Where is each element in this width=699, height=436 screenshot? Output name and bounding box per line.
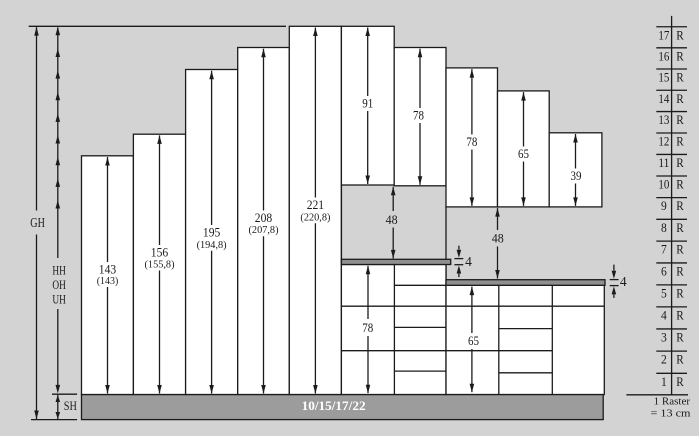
svg-text:65: 65 bbox=[518, 146, 529, 161]
svg-text:6: 6 bbox=[661, 265, 667, 279]
svg-text:1 Raster: 1 Raster bbox=[654, 396, 691, 407]
svg-text:SH: SH bbox=[64, 398, 77, 413]
svg-text:16: 16 bbox=[658, 49, 669, 63]
svg-text:195: 195 bbox=[203, 225, 220, 240]
svg-text:(194,8): (194,8) bbox=[197, 239, 227, 251]
svg-text:R: R bbox=[676, 113, 684, 127]
svg-text:7: 7 bbox=[661, 243, 667, 257]
svg-text:R: R bbox=[676, 353, 684, 367]
svg-text:R: R bbox=[676, 199, 684, 213]
svg-text:R: R bbox=[676, 49, 684, 63]
svg-text:HH: HH bbox=[52, 263, 66, 278]
svg-text:R: R bbox=[676, 286, 684, 300]
svg-text:78: 78 bbox=[413, 108, 424, 123]
svg-text:R: R bbox=[676, 375, 684, 389]
svg-text:65: 65 bbox=[468, 333, 479, 348]
svg-text:R: R bbox=[676, 178, 684, 192]
svg-text:91: 91 bbox=[362, 95, 373, 110]
svg-text:UH: UH bbox=[52, 292, 66, 307]
svg-text:4: 4 bbox=[620, 274, 627, 289]
svg-text:(155,8): (155,8) bbox=[145, 259, 175, 271]
svg-text:2: 2 bbox=[661, 353, 667, 367]
svg-text:12: 12 bbox=[658, 135, 669, 149]
svg-text:R: R bbox=[676, 92, 684, 106]
svg-text:R: R bbox=[676, 135, 684, 149]
svg-text:(207,8): (207,8) bbox=[249, 224, 279, 236]
svg-text:11: 11 bbox=[658, 156, 669, 170]
svg-text:R: R bbox=[676, 265, 684, 279]
svg-text:5: 5 bbox=[661, 286, 667, 300]
svg-text:10: 10 bbox=[658, 178, 669, 192]
svg-text:78: 78 bbox=[362, 320, 373, 335]
svg-text:221: 221 bbox=[307, 197, 324, 212]
svg-text:14: 14 bbox=[658, 92, 670, 106]
svg-text:(220,8): (220,8) bbox=[300, 211, 330, 223]
svg-text:4: 4 bbox=[465, 254, 472, 269]
svg-text:4: 4 bbox=[661, 308, 667, 322]
svg-text:156: 156 bbox=[151, 245, 169, 260]
svg-text:OH: OH bbox=[52, 277, 66, 292]
svg-text:9: 9 bbox=[661, 199, 667, 213]
svg-text:(143): (143) bbox=[97, 275, 119, 287]
svg-text:R: R bbox=[676, 28, 684, 42]
svg-text:8: 8 bbox=[661, 221, 667, 235]
svg-text:48: 48 bbox=[492, 231, 504, 246]
svg-text:R: R bbox=[676, 221, 684, 235]
svg-text:R: R bbox=[676, 71, 684, 85]
svg-text:15: 15 bbox=[658, 71, 669, 85]
svg-text:39: 39 bbox=[571, 168, 582, 183]
svg-text:208: 208 bbox=[255, 210, 272, 225]
svg-text:R: R bbox=[676, 331, 684, 345]
svg-text:R: R bbox=[676, 156, 684, 170]
svg-text:1: 1 bbox=[661, 375, 667, 389]
svg-text:13: 13 bbox=[658, 113, 669, 127]
svg-text:78: 78 bbox=[466, 134, 477, 149]
svg-text:= 13 cm: = 13 cm bbox=[651, 409, 691, 420]
svg-text:R: R bbox=[676, 243, 684, 257]
svg-text:48: 48 bbox=[386, 212, 398, 227]
svg-text:10/15/17/22: 10/15/17/22 bbox=[302, 398, 366, 413]
svg-text:GH: GH bbox=[30, 215, 45, 230]
svg-text:3: 3 bbox=[661, 331, 667, 345]
svg-text:R: R bbox=[676, 308, 684, 322]
svg-text:17: 17 bbox=[658, 28, 669, 42]
